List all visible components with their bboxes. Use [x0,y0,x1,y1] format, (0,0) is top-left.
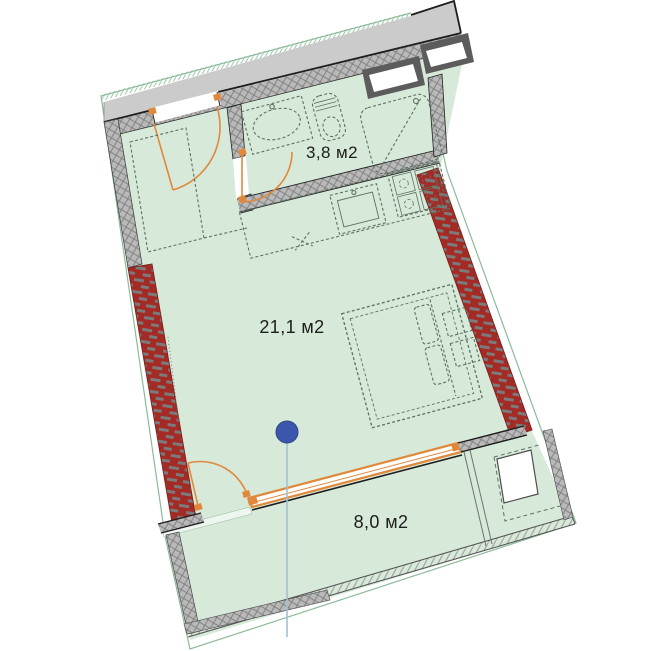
pin-icon[interactable] [276,421,298,443]
balcony-unit-box [497,450,538,503]
balcony-area-label: 8,0 м2 [354,512,409,532]
floor-plan-canvas: 3,8 м2 21,1 м2 8,0 м2 [0,0,667,651]
main-room-area-label: 21,1 м2 [259,317,324,337]
floor-plan-page: 3,8 м2 21,1 м2 8,0 м2 [0,0,667,651]
bathroom-area-label: 3,8 м2 [306,143,358,162]
